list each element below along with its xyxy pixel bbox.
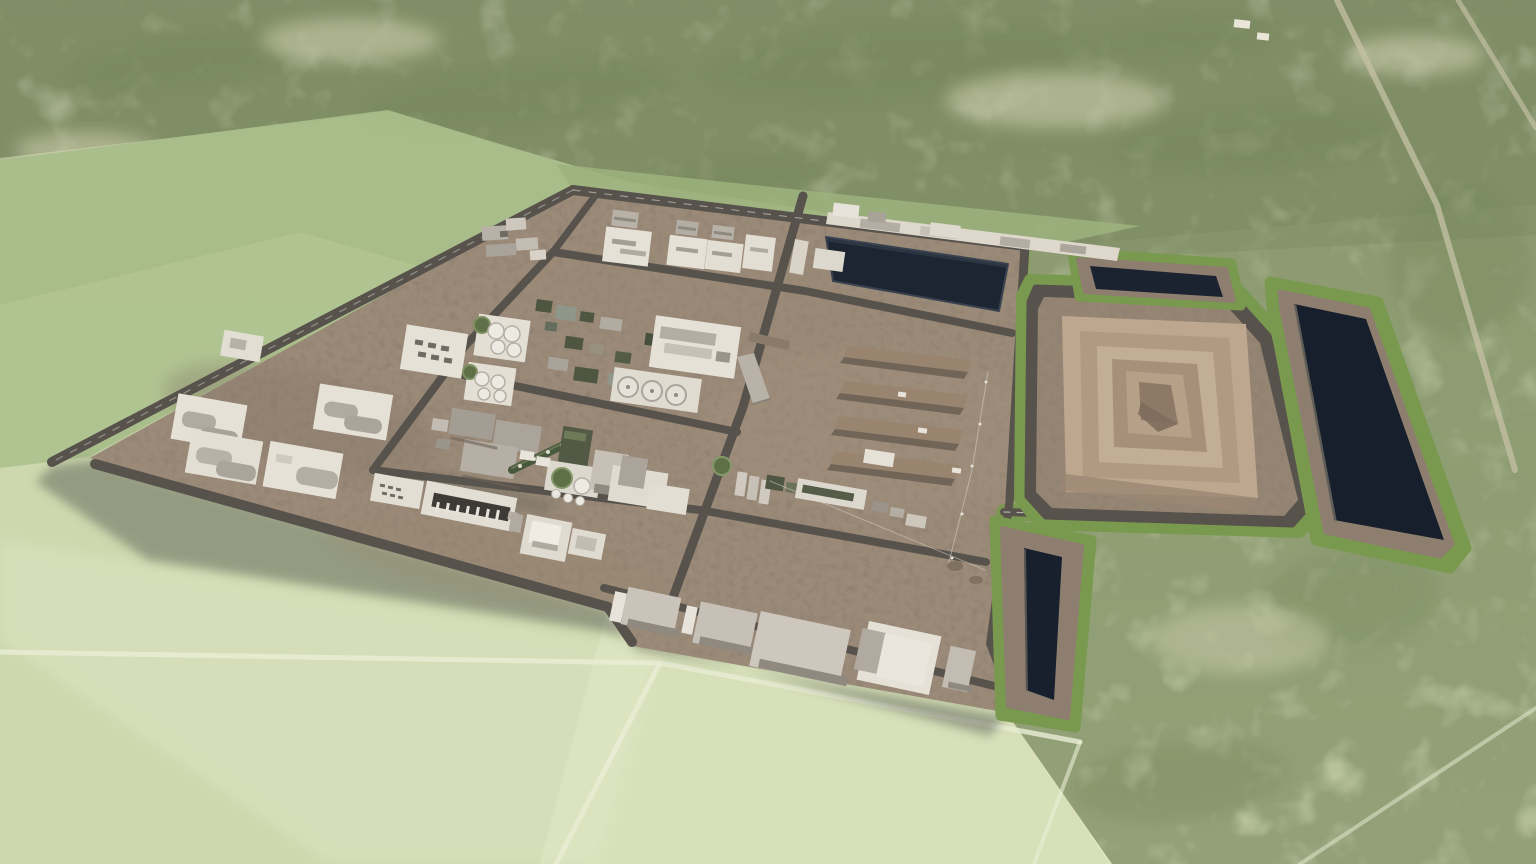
powerline-pole xyxy=(971,465,974,468)
process-tank xyxy=(576,497,585,506)
mill-equipment xyxy=(544,321,557,332)
scene-feature-layer xyxy=(0,0,1536,864)
storage-tank xyxy=(488,323,504,339)
marked-pad xyxy=(400,324,468,378)
bare-soil-patch xyxy=(945,72,1165,128)
truss-support xyxy=(518,464,522,468)
mill-equipment xyxy=(614,351,631,364)
bare-soil-patch xyxy=(260,18,440,62)
row1-equipment xyxy=(506,217,527,230)
storage-tank xyxy=(504,326,520,342)
storage-tank xyxy=(478,388,490,400)
process-tank xyxy=(552,490,561,499)
soil-spot xyxy=(969,576,983,584)
mill-equipment xyxy=(535,299,553,313)
row1-equipment xyxy=(516,237,539,251)
soil-spot xyxy=(947,561,963,571)
storage-tank xyxy=(494,390,506,402)
process-tank-green xyxy=(552,468,572,488)
process-tank xyxy=(574,478,590,494)
process-tank xyxy=(564,494,573,503)
truss-support xyxy=(546,450,550,454)
storage-tank xyxy=(491,375,505,389)
distant-structure xyxy=(1257,32,1270,40)
row1-equipment xyxy=(500,231,508,238)
storage-tank xyxy=(491,340,505,354)
row1-pad xyxy=(704,240,743,273)
aerial-render-viewport xyxy=(0,0,1536,864)
distant-structure xyxy=(1234,19,1251,29)
thickener-hub xyxy=(626,385,630,389)
lab-building xyxy=(715,351,730,363)
brush-patch xyxy=(1390,180,1530,340)
spine-east-pad xyxy=(813,248,845,272)
storage-tank xyxy=(507,343,521,357)
row1-equipment xyxy=(530,249,547,260)
silo-tank-green xyxy=(713,457,731,475)
bare-soil-patch xyxy=(1150,606,1330,674)
powerline-pole xyxy=(985,381,988,384)
row1-equipment xyxy=(486,243,517,257)
row1-pad xyxy=(602,226,652,266)
thickener-hub xyxy=(674,393,678,397)
powerline-pole xyxy=(979,423,982,426)
powerline-pole xyxy=(961,513,964,516)
mill-equipment xyxy=(589,343,604,355)
row1-pad xyxy=(742,234,776,271)
mill-equipment xyxy=(579,311,594,323)
mill-equipment xyxy=(555,305,577,322)
plant-outbuilding xyxy=(431,418,449,432)
storage-tank xyxy=(475,372,489,386)
facility-render-canvas xyxy=(0,0,1536,864)
mill-equipment xyxy=(564,336,583,350)
thickener-hub xyxy=(650,389,654,393)
plant-building-east xyxy=(618,455,648,489)
